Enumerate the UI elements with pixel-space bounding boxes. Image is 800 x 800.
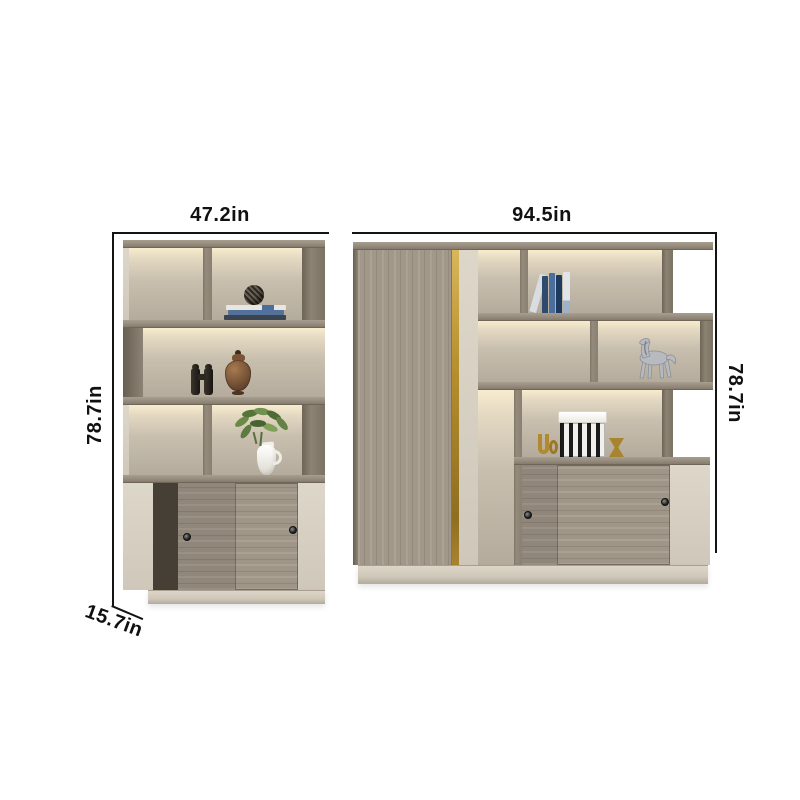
product-dimension-image: 47.2in 78.7in 15.7in 94.5in 78.7in <box>0 0 800 800</box>
gold-ornaments-decor <box>538 432 558 457</box>
left-box-side <box>123 328 143 397</box>
right-top-slab <box>353 242 713 250</box>
left-row1-divider <box>203 248 212 320</box>
left-door-knob <box>289 526 297 534</box>
right-row3-column <box>662 390 673 457</box>
right-cabinet-top <box>514 457 710 465</box>
gold-ornaments-decor <box>609 438 624 457</box>
right-width-dimension-line <box>352 232 717 234</box>
gold-trim-strip <box>452 250 459 565</box>
left-bookcase <box>123 240 325 603</box>
left-width-label: 47.2in <box>150 200 290 230</box>
right-bookcase <box>353 242 713 585</box>
striped-hatbox-decor <box>558 411 607 457</box>
left-box-top <box>123 320 325 328</box>
left-sliding-door-front <box>235 483 298 590</box>
left-box-bay <box>143 328 325 397</box>
blue-books-decor <box>529 268 575 313</box>
right-row1-column <box>662 250 673 313</box>
right-cream-panel <box>459 250 478 565</box>
right-shelf-b <box>478 382 713 390</box>
left-row3-column <box>302 405 325 475</box>
left-width-dimension-line <box>112 232 329 234</box>
horse-figurine-decor <box>628 338 678 382</box>
right-row3-divider <box>514 390 522 565</box>
left-row1-bay-right <box>212 248 302 320</box>
left-row1-column <box>302 248 325 320</box>
binoculars-decor <box>191 360 213 396</box>
right-shelf-a <box>478 313 713 321</box>
left-top-slab <box>123 240 325 248</box>
right-door-knob <box>661 498 669 506</box>
white-pitcher-decor <box>257 442 283 475</box>
left-height-dimension-line <box>112 232 114 606</box>
wardrobe-door <box>358 250 452 565</box>
right-cabinet-right-panel <box>670 465 710 565</box>
right-row2-side-panel <box>700 321 713 382</box>
left-box-bottom <box>123 397 325 405</box>
right-row1-divider <box>520 250 528 313</box>
right-narrow-bay <box>478 390 514 565</box>
right-height-dimension-line <box>715 232 717 553</box>
bronze-vase-decor <box>225 350 253 396</box>
left-door-knob <box>183 533 191 541</box>
right-row2-divider <box>590 321 598 382</box>
left-cabinet-right-panel <box>298 483 325 590</box>
right-width-label: 94.5in <box>472 200 612 230</box>
left-row3-bay-right <box>212 405 302 475</box>
right-base-plinth <box>358 565 708 584</box>
left-base-plinth <box>148 590 325 604</box>
right-sliding-door-front <box>557 465 670 565</box>
right-door-knob <box>524 511 532 519</box>
left-height-label: 78.7in <box>80 365 110 465</box>
right-height-label: 78.7in <box>720 343 750 443</box>
wire-sphere-decor <box>244 285 264 305</box>
left-cabinet-interior <box>153 483 178 590</box>
left-cabinet-top <box>123 475 325 483</box>
left-row1-bay-left <box>129 248 203 320</box>
left-row3-divider <box>203 405 212 475</box>
left-row3-bay-left <box>129 405 203 475</box>
left-cabinet-side <box>123 483 153 590</box>
